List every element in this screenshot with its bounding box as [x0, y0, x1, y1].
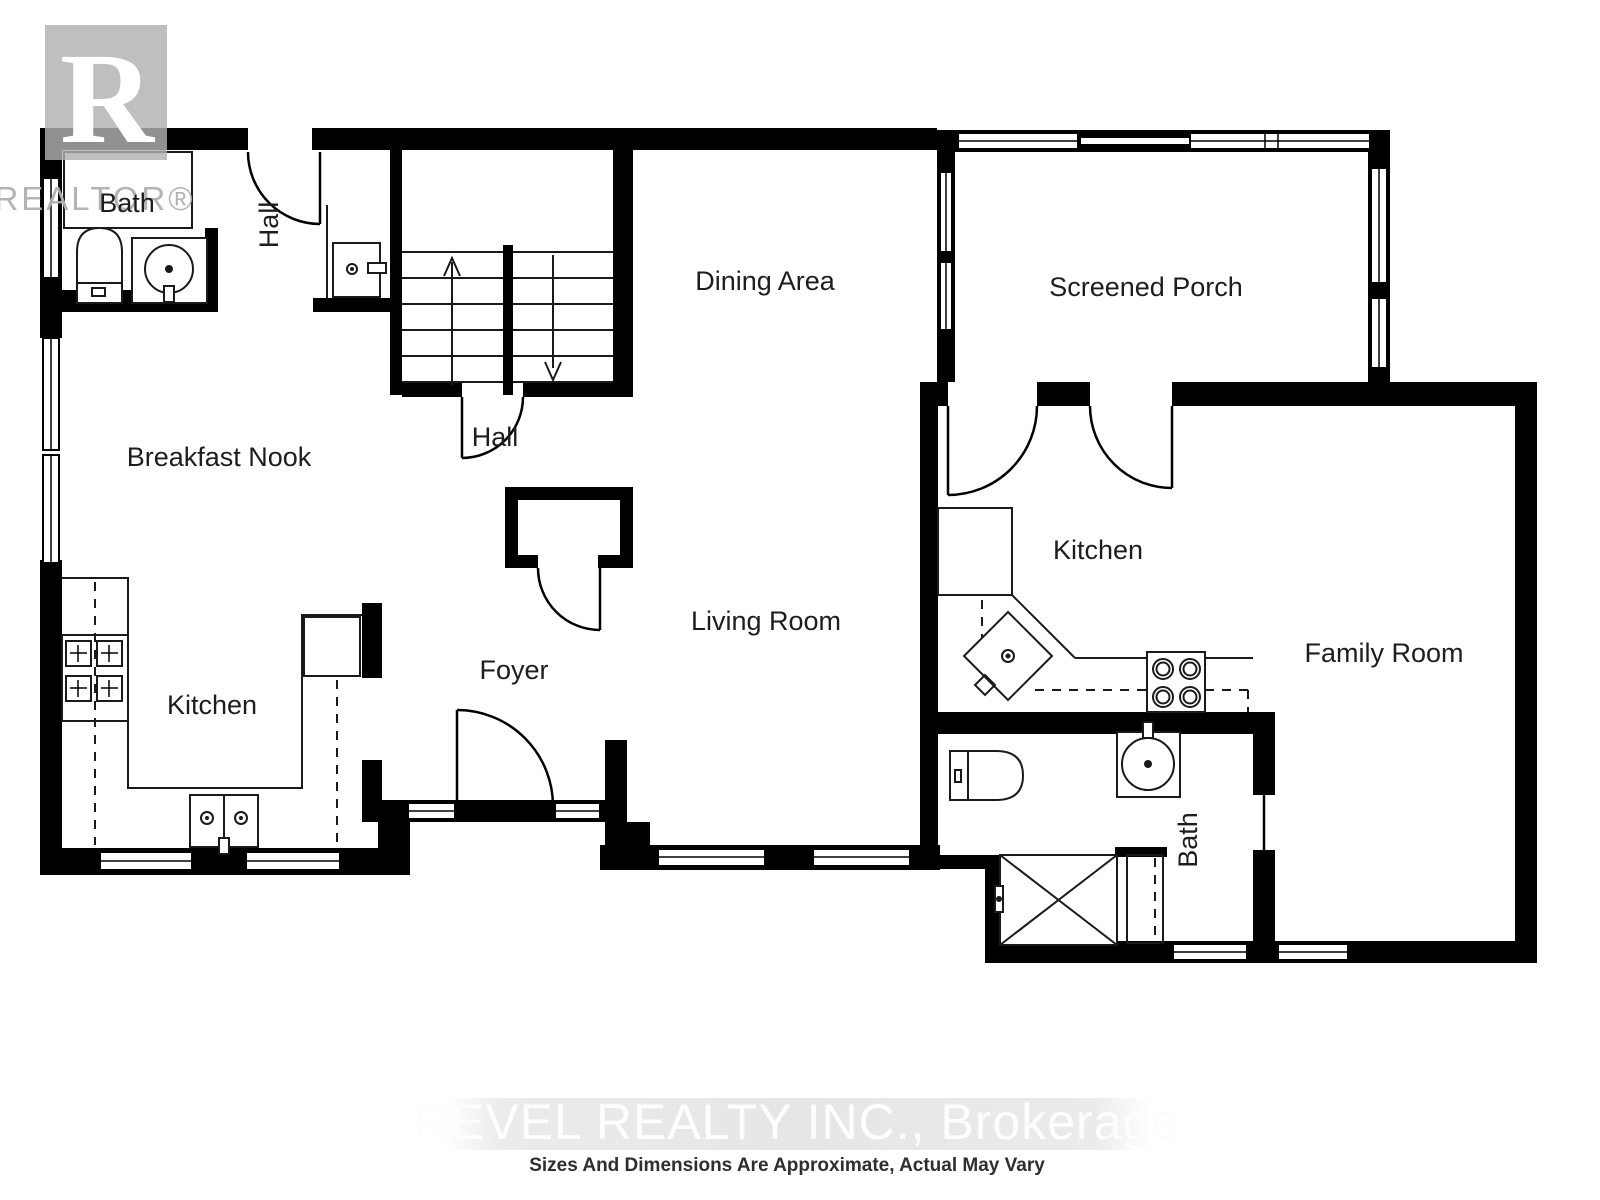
upper-bath-toilet — [77, 228, 122, 303]
room-label-family-room: Family Room — [1304, 638, 1463, 668]
kitchen-right-corner-sink — [964, 612, 1052, 700]
room-label-living-room: Living Room — [691, 606, 841, 636]
stairs-down-arrow — [545, 255, 561, 380]
window-bath-bottom — [1173, 944, 1247, 960]
room-label-hall-lower: Hall — [472, 422, 519, 452]
room-label-bath-lower: Bath — [1173, 812, 1203, 868]
window-dining-upper — [940, 172, 952, 252]
window-porch-top-mid — [1080, 137, 1190, 145]
lower-bath-linen — [1127, 855, 1163, 943]
realtor-logo: R REALTOR® — [0, 25, 196, 217]
brokerage-watermark: REVEL REALTY INC., Brokerage Sizes And D… — [414, 1094, 1180, 1176]
lower-bath-shower — [995, 855, 1117, 945]
room-label-hall-upper: Hall — [254, 202, 284, 249]
lower-bath-sink — [1117, 722, 1180, 797]
window-porch-right-lower — [1371, 298, 1387, 368]
window-foyer-sidelight-left — [408, 803, 455, 819]
room-label-foyer: Foyer — [479, 655, 548, 685]
window-porch-top-right — [1190, 133, 1370, 149]
window-living-1 — [658, 849, 765, 866]
room-label-kitchen-left: Kitchen — [167, 690, 257, 720]
room-label-screened-porch: Screened Porch — [1049, 272, 1243, 302]
door-front-entry — [457, 710, 553, 806]
watermark-disclaimer-text: Sizes And Dimensions Are Approximate, Ac… — [529, 1155, 1045, 1176]
window-kitchen-left-2 — [246, 852, 340, 870]
door-porch-kitchen — [1090, 406, 1172, 488]
door-kitchen-west — [948, 406, 1037, 495]
watermark-brokerage-text: REVEL REALTY INC., Brokerage — [414, 1094, 1180, 1150]
lower-bath-toilet — [950, 751, 1023, 800]
walls — [40, 128, 1537, 963]
upper-bath-sink — [132, 238, 207, 303]
floor-plan-page: R REALTOR® Bath Hall Breakfast Nook Hall… — [0, 0, 1600, 1200]
kitchen-right-stove — [1147, 652, 1205, 712]
kitchen-left-sink — [190, 795, 258, 854]
window-foyer-sidelight-right — [555, 803, 600, 819]
window-porch-right-upper — [1371, 168, 1387, 283]
room-label-breakfast-nook: Breakfast Nook — [127, 442, 312, 472]
room-label-kitchen-right: Kitchen — [1053, 535, 1143, 565]
window-family-bottom — [1278, 944, 1348, 960]
window-porch-top-left — [958, 133, 1078, 149]
room-label-bath-upper: Bath — [99, 188, 155, 218]
window-dining-lower — [940, 262, 952, 330]
window-living-2 — [813, 849, 910, 866]
room-label-dining-area: Dining Area — [695, 266, 836, 296]
realtor-wordmark: REALTOR® — [0, 180, 196, 217]
window-nook-upper — [43, 338, 59, 450]
utility-sink — [327, 205, 386, 298]
window-nook-lower — [43, 455, 59, 563]
floor-plan: R REALTOR® Bath Hall Breakfast Nook Hall… — [0, 0, 1600, 1200]
realtor-logo-letter: R — [60, 27, 156, 171]
window-kitchen-left-1 — [100, 852, 192, 870]
door-closet — [538, 568, 600, 630]
staircase — [402, 245, 613, 395]
